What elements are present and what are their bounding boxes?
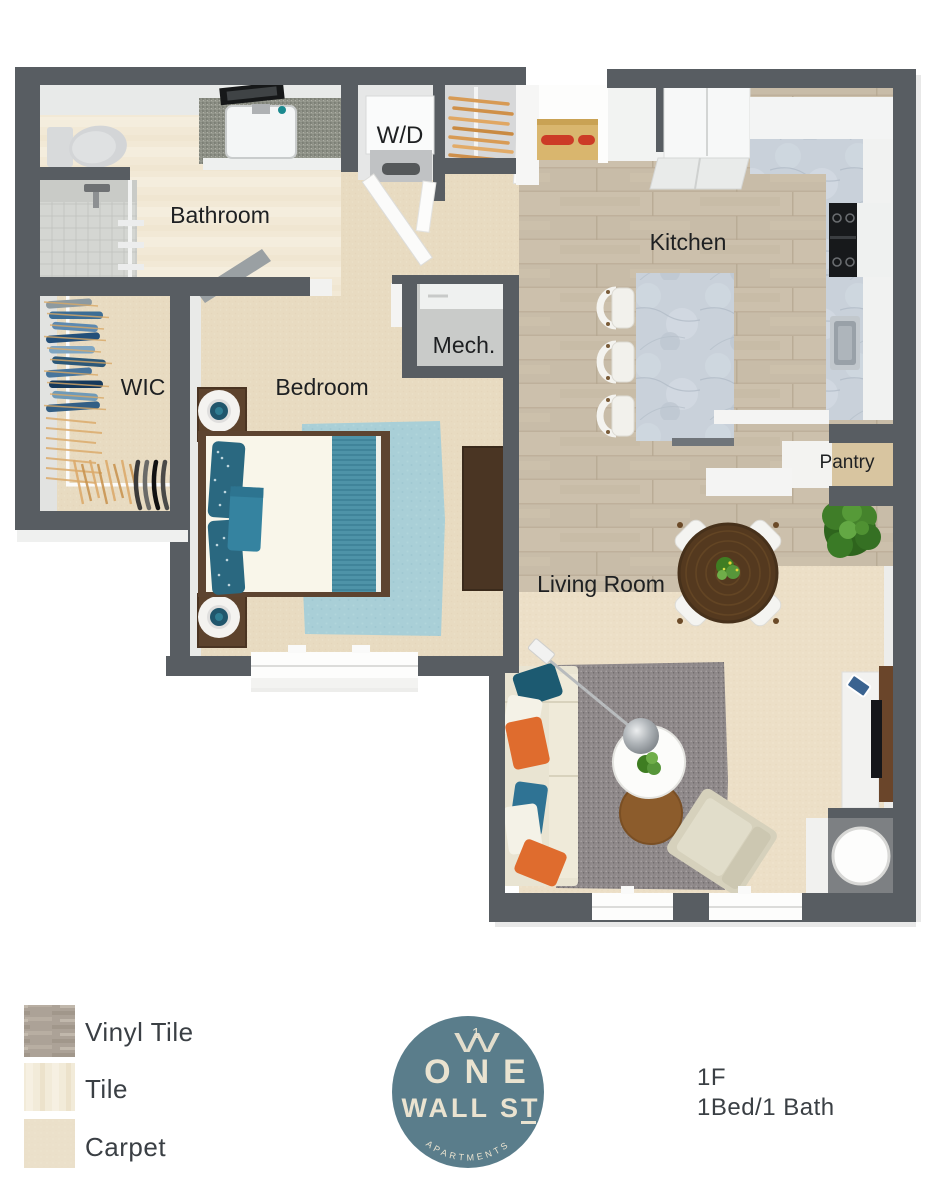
svg-text:1Bed/1 Bath: 1Bed/1 Bath bbox=[697, 1094, 835, 1121]
svg-text:WALL ST: WALL ST bbox=[402, 1093, 541, 1123]
svg-text:ONE: ONE bbox=[424, 1053, 540, 1091]
svg-text:Bedroom: Bedroom bbox=[275, 374, 368, 400]
svg-text:Living Room: Living Room bbox=[537, 571, 665, 597]
svg-text:Bathroom: Bathroom bbox=[170, 202, 270, 228]
svg-text:1: 1 bbox=[472, 1025, 480, 1042]
svg-text:Carpet: Carpet bbox=[85, 1132, 166, 1162]
svg-text:Vinyl Tile: Vinyl Tile bbox=[85, 1017, 194, 1047]
svg-text:W/D: W/D bbox=[377, 122, 424, 149]
svg-text:Mech.: Mech. bbox=[433, 332, 496, 358]
svg-text:Pantry: Pantry bbox=[820, 452, 875, 473]
svg-text:WIC: WIC bbox=[121, 374, 166, 400]
svg-text:1F: 1F bbox=[697, 1064, 726, 1091]
svg-text:Kitchen: Kitchen bbox=[650, 229, 727, 255]
svg-text:Tile: Tile bbox=[85, 1074, 128, 1104]
